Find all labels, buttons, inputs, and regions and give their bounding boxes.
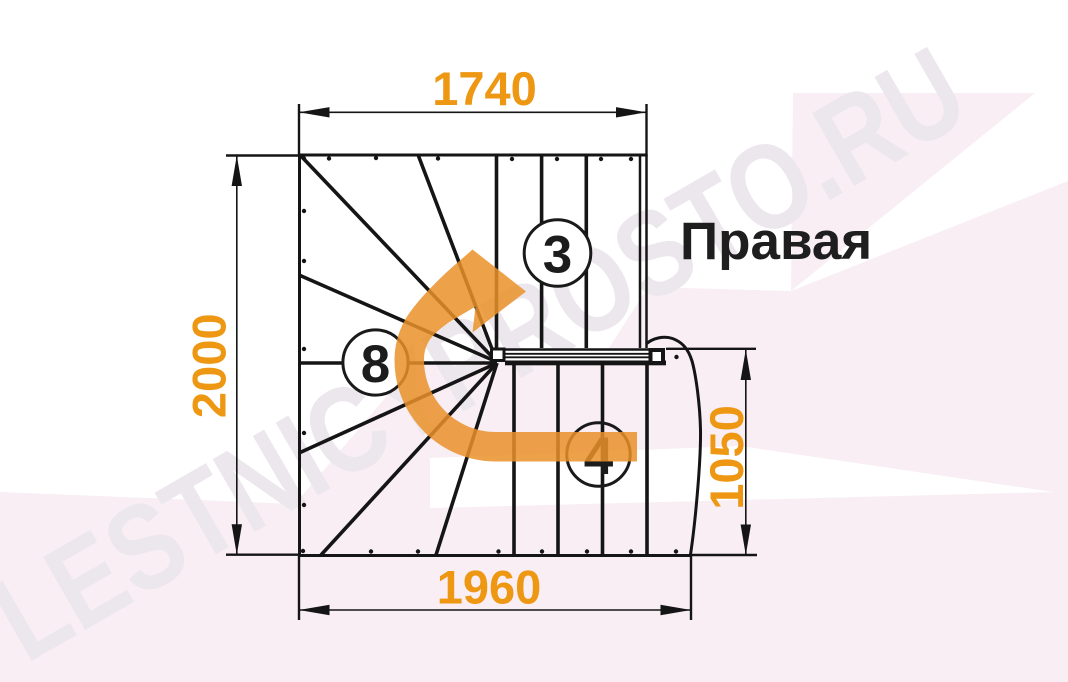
svg-text:1960: 1960 — [437, 560, 542, 613]
svg-text:1740: 1740 — [432, 62, 537, 115]
svg-text:2000: 2000 — [183, 314, 236, 419]
svg-text:3: 3 — [543, 225, 572, 284]
svg-text:8: 8 — [361, 335, 390, 394]
svg-text:Правая: Правая — [680, 212, 872, 271]
svg-text:1050: 1050 — [700, 405, 753, 510]
